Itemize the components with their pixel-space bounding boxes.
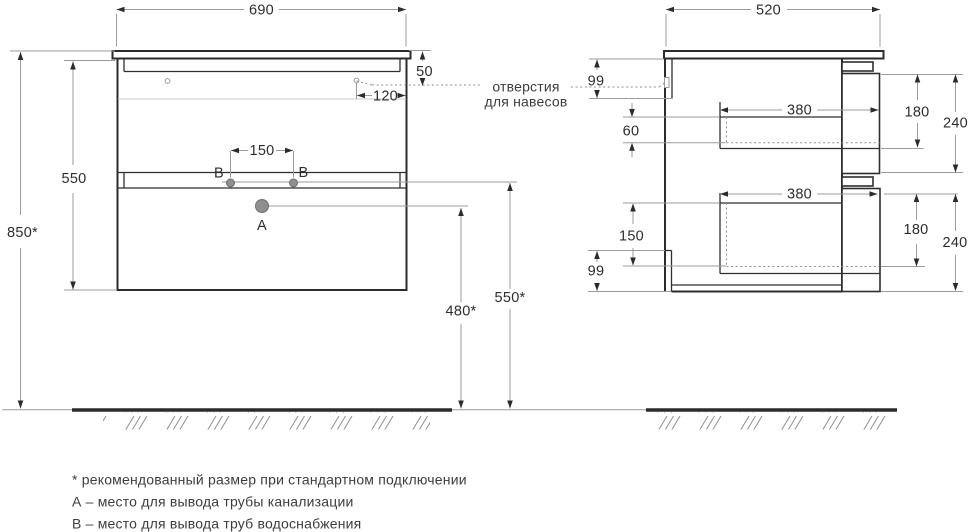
dim-drawer1-module: 240 xyxy=(881,75,968,173)
svg-text:180: 180 xyxy=(904,105,929,121)
svg-text:380: 380 xyxy=(787,103,812,119)
dim-drawer1-inset: 60 xyxy=(623,103,726,157)
hanger-bracket xyxy=(665,78,670,88)
floor xyxy=(2,410,897,430)
svg-text:850*: 850* xyxy=(7,225,38,241)
front-cabinet-body xyxy=(118,59,407,291)
hanger-hole-left xyxy=(165,79,170,84)
svg-text:550: 550 xyxy=(61,171,86,187)
footnotes: * рекомендованный размер при стандартном… xyxy=(72,472,467,532)
dim-water-height: 550* xyxy=(494,183,525,409)
water-outlet-right xyxy=(290,179,298,187)
dim-drawer1-front: 180 xyxy=(881,75,963,149)
svg-text:690: 690 xyxy=(249,3,274,19)
side-view xyxy=(664,51,884,292)
water-outlet-left xyxy=(227,179,235,187)
label-b-left: B xyxy=(214,166,224,182)
vanity-dimension-drawing: B B A 690 850* 550 xyxy=(0,0,970,532)
hanger-hole-right xyxy=(354,78,359,83)
svg-text:550*: 550* xyxy=(494,290,525,306)
svg-text:520: 520 xyxy=(756,3,781,19)
svg-text:99: 99 xyxy=(588,264,605,280)
svg-text:150: 150 xyxy=(249,143,274,159)
svg-text:150: 150 xyxy=(619,229,644,245)
svg-text:60: 60 xyxy=(623,124,640,140)
technical-drawing-sheet: B B A 690 850* 550 xyxy=(0,0,970,532)
dim-bottom-rail: 99 xyxy=(588,251,671,292)
front-countertop xyxy=(113,51,411,59)
dim-drawer2-module: 240 xyxy=(881,194,968,292)
label-b-right: B xyxy=(299,165,309,181)
footnote-recommended: * рекомендованный размер при стандартном… xyxy=(72,472,467,488)
callout-line2: для навесов xyxy=(485,94,568,110)
dim-front-total-height: 850* xyxy=(7,51,115,409)
svg-text:50: 50 xyxy=(416,64,433,80)
floor-hatching-side xyxy=(650,413,892,430)
drain-outlet xyxy=(256,200,269,213)
callout-line1: отверстия xyxy=(492,79,559,95)
side-countertop xyxy=(664,51,884,59)
dim-front-body-height: 550 xyxy=(61,61,116,291)
svg-text:180: 180 xyxy=(903,222,928,238)
svg-text:240: 240 xyxy=(943,116,968,132)
svg-text:380: 380 xyxy=(787,187,812,203)
dim-side-depth: 520 xyxy=(666,3,880,48)
svg-text:480*: 480* xyxy=(445,304,476,320)
side-top-trim xyxy=(842,62,873,71)
floor-hatching-front xyxy=(103,413,430,430)
side-drawer1-front xyxy=(842,74,880,174)
front-view: B B A xyxy=(113,51,518,290)
side-drawer2-front xyxy=(842,189,880,292)
side-mid-trim xyxy=(842,177,873,186)
svg-text:240: 240 xyxy=(942,235,967,251)
side-dimensions: 520 99 60 380 xyxy=(588,3,968,292)
footnote-a: А – место для вывода трубы канализации xyxy=(72,494,354,510)
svg-text:120: 120 xyxy=(373,89,398,105)
dim-drawer2-front: 180 xyxy=(881,194,929,267)
dim-front-width: 690 xyxy=(117,3,407,47)
footnote-b: В – место для вывода труб водоснабжения xyxy=(72,516,361,532)
dim-hanger-vertical-offset: 50 xyxy=(409,51,433,87)
label-a: A xyxy=(257,218,267,234)
dim-top-rail: 99 xyxy=(588,59,671,99)
dim-drawer2-inset: 150 xyxy=(619,203,726,266)
svg-text:99: 99 xyxy=(588,74,605,90)
dim-drain-height: 480* xyxy=(445,208,476,409)
dim-drawer2-depth: 380 xyxy=(720,187,958,203)
